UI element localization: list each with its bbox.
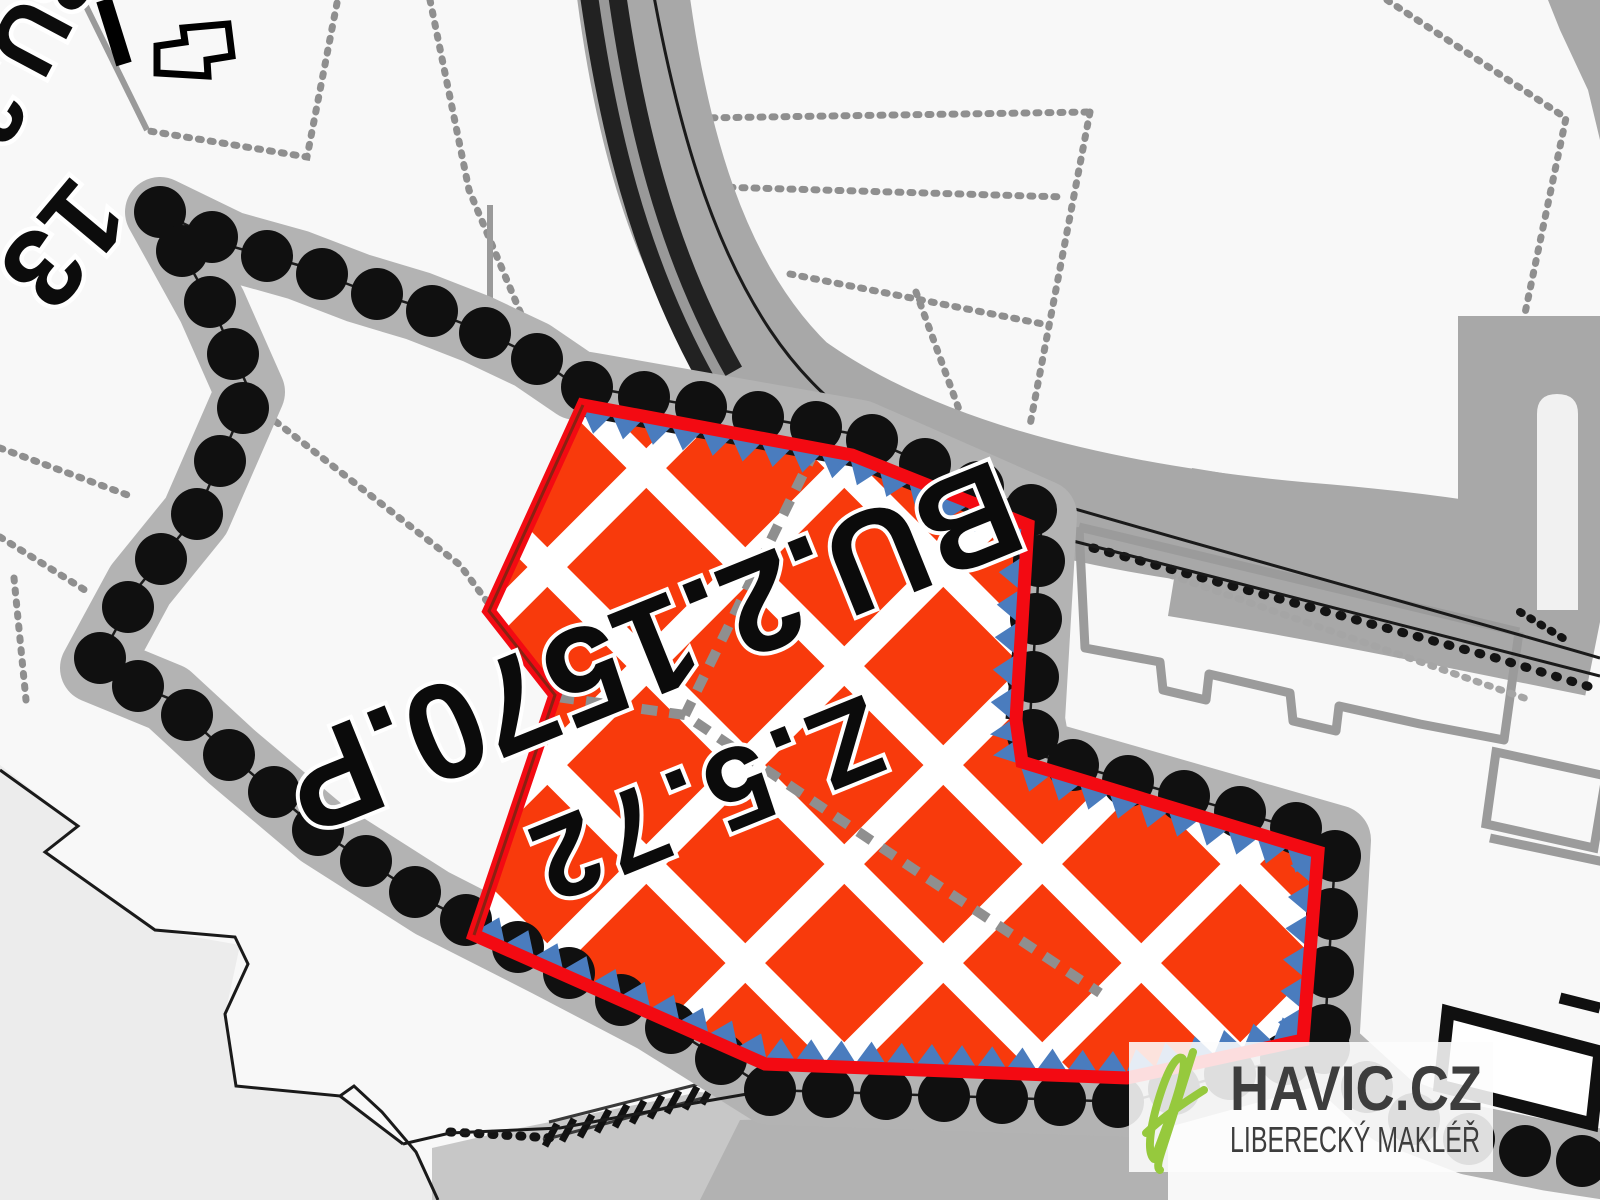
svg-text:LIBERECKÝ MAKLÉŘ: LIBERECKÝ MAKLÉŘ [1230, 1119, 1480, 1160]
svg-text:HAVIC.CZ: HAVIC.CZ [1230, 1054, 1482, 1124]
